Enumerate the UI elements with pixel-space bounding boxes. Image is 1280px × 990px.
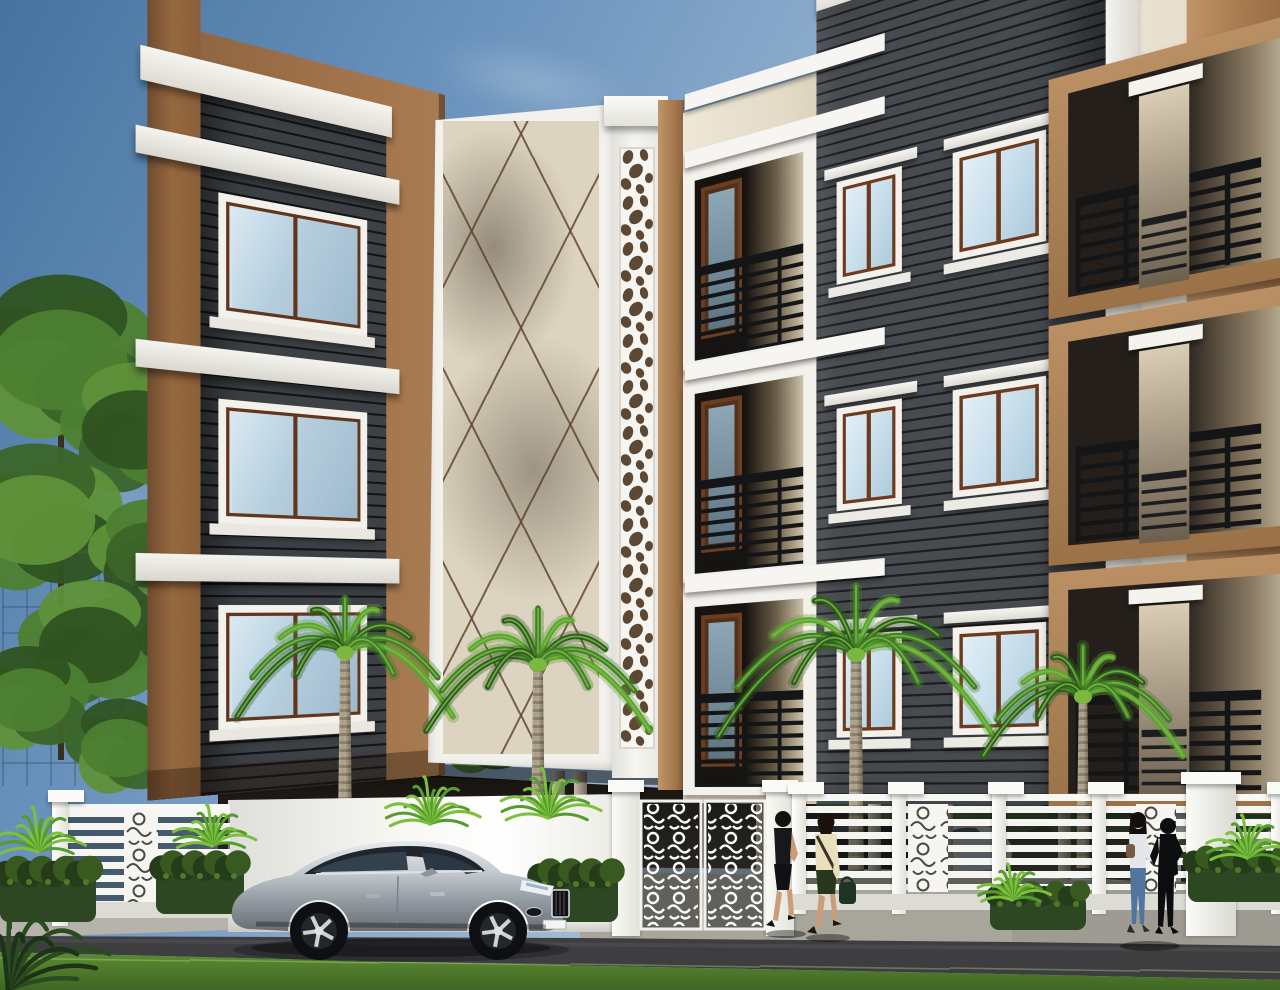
pedestrians-walking (756, 806, 876, 946)
fern-shrub (501, 768, 601, 820)
walking-woman-cream (807, 814, 856, 935)
pedestrians-standing (1106, 796, 1196, 956)
car-door-seam (397, 876, 398, 926)
car-door-handle (430, 892, 445, 896)
architectural-render-scene (0, 0, 1280, 990)
shadow (806, 934, 850, 942)
car-license-plate (543, 920, 566, 929)
fern-shrub (1207, 815, 1280, 860)
handbag (839, 882, 856, 904)
standing-person-black (1150, 818, 1183, 934)
shadow (766, 930, 806, 938)
fern-shrub (978, 864, 1050, 902)
fern-frond (982, 897, 1012, 901)
car-wheel (290, 902, 348, 960)
fern-shrubs (0, 0, 1280, 990)
fern-frond (1211, 854, 1247, 859)
walking-woman-black (766, 811, 798, 927)
car-wheel (469, 902, 527, 960)
fern-frond (177, 843, 212, 848)
car-foglight (526, 908, 542, 917)
shadow (1120, 941, 1180, 951)
car-door-handle (366, 894, 380, 898)
standing-person-jeans (1126, 812, 1154, 933)
foreground-plants (0, 835, 120, 990)
shoulder-bag (1126, 844, 1135, 858)
silver-coupe (216, 814, 584, 968)
